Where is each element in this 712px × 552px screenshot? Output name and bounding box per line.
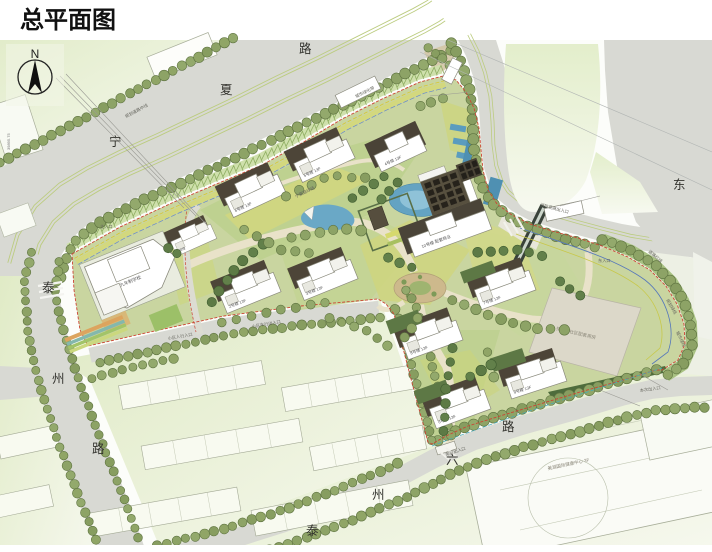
svg-text:路: 路 xyxy=(92,441,105,456)
svg-text:宁: 宁 xyxy=(109,134,122,149)
svg-text:总平面图: 总平面图 xyxy=(20,6,116,34)
svg-text:东入口: 东入口 xyxy=(598,257,611,263)
svg-text:主入口: 主入口 xyxy=(100,223,113,229)
svg-text:州: 州 xyxy=(52,372,65,386)
svg-text:路: 路 xyxy=(502,419,515,434)
svg-text:泰: 泰 xyxy=(306,524,319,538)
svg-text:N: N xyxy=(31,47,40,61)
svg-text:路: 路 xyxy=(299,41,312,56)
svg-text:39895.75: 39895.75 xyxy=(6,133,11,150)
svg-text:东: 东 xyxy=(673,178,686,192)
svg-text:州: 州 xyxy=(372,488,385,502)
svg-text:泰: 泰 xyxy=(42,281,55,295)
svg-text:六: 六 xyxy=(446,453,459,467)
svg-text:夏: 夏 xyxy=(220,83,233,97)
